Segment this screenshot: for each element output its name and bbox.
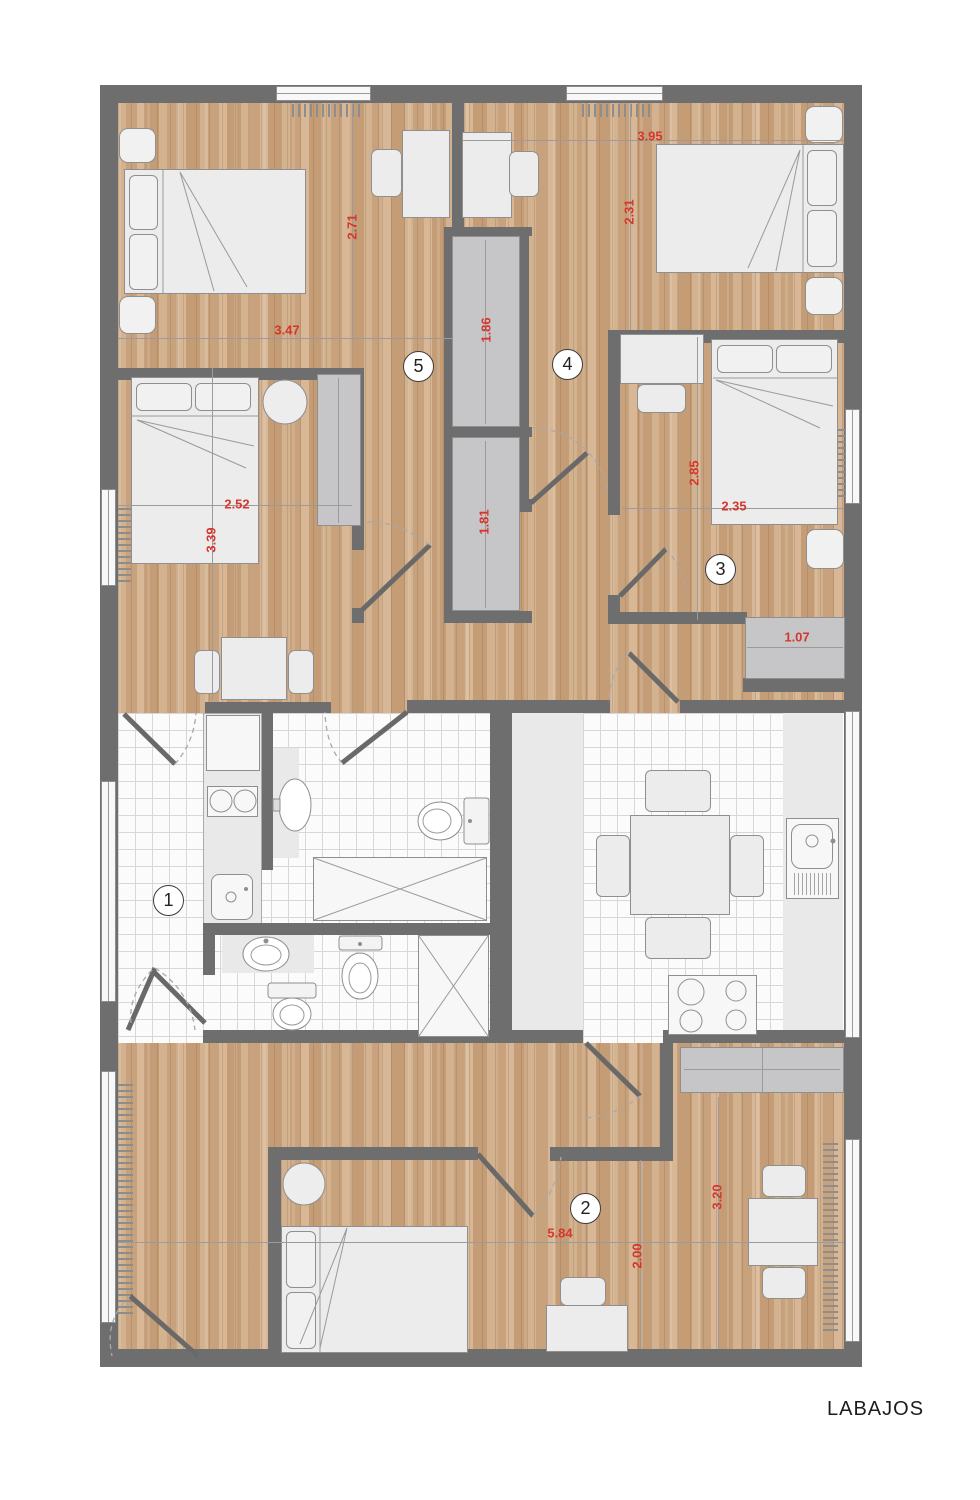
pillow (807, 210, 837, 267)
bath-top-vanity (273, 748, 299, 858)
window-bedroom2-right (845, 1139, 860, 1342)
chair-desk-bedroom2 (560, 1277, 606, 1306)
wall-baths-divider (203, 923, 492, 935)
pillow (136, 383, 192, 411)
chair-table-bedroom2-top (762, 1165, 806, 1197)
pillow (286, 1231, 316, 1288)
wall-closet-right-upper (520, 227, 529, 436)
plan-title: LABAJOS (827, 1398, 924, 1421)
dining-sink-drainboard (794, 873, 831, 895)
dimension-room3-width: 2.35 (721, 500, 746, 513)
fridge (206, 715, 260, 771)
room-number-3: 3 (705, 554, 736, 585)
chair-room4 (509, 151, 539, 197)
wall-bed2-vertical (660, 1043, 673, 1153)
pillow (195, 383, 251, 411)
radiator-roomL (118, 508, 131, 582)
dining-chair-top (645, 770, 711, 812)
pillow (776, 345, 832, 373)
closet-roomL (317, 374, 361, 526)
desk-bedroom2 (546, 1305, 628, 1352)
wall-tiled-top-b (205, 702, 331, 713)
dimension-room2-width: 5.84 (547, 1227, 572, 1240)
window-kitchen (101, 781, 116, 1002)
dining-chair-left (596, 835, 630, 897)
desk-room5 (402, 130, 450, 218)
chair-room5 (371, 149, 402, 197)
chair-table-bedroom2-bottom (762, 1267, 806, 1299)
dimension-roomL-width: 2.52 (224, 498, 249, 511)
wall-kitchen-bath-divider (262, 713, 273, 870)
room-number-1-label: 1 (163, 890, 173, 911)
shower-bottom-bath (418, 935, 489, 1037)
wall-room3-bottom (608, 612, 747, 624)
room-number-4: 4 (552, 349, 583, 380)
wall-outer-bottom (100, 1349, 862, 1367)
wall-dining-top-left (512, 700, 610, 713)
dining-chair-bottom (645, 917, 711, 959)
wall-closet-right-mid (520, 437, 529, 500)
closet-bedroom2-divider (762, 1048, 763, 1092)
desk-roomL (221, 637, 287, 700)
window-room3 (845, 409, 860, 504)
radiator-room5 (292, 104, 364, 117)
window-roomL (101, 489, 116, 586)
wall-outer-top (100, 85, 862, 103)
dimension-closet-lower: 1.81 (478, 509, 491, 534)
wall-room3-left (608, 330, 620, 515)
room-number-4-label: 4 (562, 354, 572, 375)
window-bedroom2-left (101, 1071, 116, 1323)
dining-chair-right (730, 835, 764, 897)
table-bedroom2 (748, 1198, 818, 1266)
wall-niche-vertical (268, 1147, 281, 1353)
chair-room3 (637, 384, 686, 413)
pillow (129, 234, 158, 290)
wall-closet-stub (518, 499, 532, 512)
bedside-cushion (805, 106, 843, 143)
dimline-room2-w (118, 1242, 844, 1243)
radiator-bedroom2-left (118, 1084, 133, 1316)
dimline-room2-right (718, 1097, 719, 1349)
wall-closet-top (444, 227, 532, 236)
dimension-roomL-height: 3.39 (205, 527, 218, 552)
dimension-room4-width: 3.95 (637, 130, 662, 143)
window-room4 (566, 86, 663, 101)
dimension-room5-height: 2.71 (346, 214, 359, 239)
bedside-cushion (805, 277, 843, 315)
wall-closet3-bottom (743, 678, 846, 692)
dimension-room5-width: 3.47 (274, 324, 299, 337)
bedside-cushion (806, 529, 844, 569)
window-room5 (276, 86, 371, 101)
dimension-room2-right: 3.20 (711, 1184, 724, 1209)
floor-plan: 3.47 2.71 3.95 2.31 1.86 1.81 2.52 3.39 … (0, 0, 980, 1500)
dimension-room3-closet: 1.07 (784, 631, 809, 644)
dimension-room4-height: 2.31 (623, 199, 636, 224)
wall-dining-top-right (680, 700, 846, 713)
wall-roomL-right-stub (352, 608, 364, 623)
wall-closet-left (444, 227, 452, 623)
pillow (807, 150, 837, 206)
closet-roomL-rail (338, 378, 339, 523)
dimension-closet-upper: 1.86 (480, 317, 493, 342)
window-dining (845, 711, 860, 1038)
pillow (129, 175, 158, 230)
chair-roomL-right (288, 650, 314, 694)
room-number-5-label: 5 (413, 356, 423, 377)
room-number-3-label: 3 (715, 559, 725, 580)
closet-room3 (745, 617, 845, 679)
wall-niche-left (268, 1147, 478, 1160)
dining-counter-left (512, 713, 583, 1030)
bedside-cushion (119, 296, 156, 334)
dimension-room3-height: 2.85 (688, 460, 701, 485)
kitchen-hob-2burner (207, 786, 258, 817)
pillow (717, 345, 773, 373)
dining-table (630, 815, 730, 915)
wall-dining-bottom-left (512, 1030, 583, 1043)
desk-room3 (620, 334, 704, 384)
bath-bottom-vanity (222, 935, 314, 973)
pillow (286, 1292, 316, 1349)
kitchen-sink (211, 874, 253, 920)
wall-bath-bottom-left (203, 935, 215, 975)
wall-closet-mid (444, 427, 532, 437)
shower-top-bath (313, 857, 487, 921)
radiator-bedroom2-right (823, 1143, 838, 1333)
wall-baths-dining-divider (490, 700, 512, 1043)
room-number-5: 5 (403, 351, 434, 382)
dimline-room5-w (118, 338, 453, 339)
dining-sink-basin (791, 824, 833, 869)
wall-niche-right (550, 1147, 673, 1161)
radiator-room4 (582, 104, 654, 117)
room-number-2: 2 (570, 1193, 601, 1224)
room-number-1: 1 (153, 885, 184, 916)
wall-closet-bottom (444, 611, 532, 623)
bedside-cushion (119, 128, 156, 163)
chair-roomL-left (194, 650, 220, 694)
dimension-room2-inner: 2.00 (631, 1243, 644, 1268)
desk-room4 (462, 132, 512, 218)
stove-4burner (668, 975, 757, 1035)
room-number-2-label: 2 (580, 1198, 590, 1219)
closet-room3-rail (747, 647, 843, 648)
